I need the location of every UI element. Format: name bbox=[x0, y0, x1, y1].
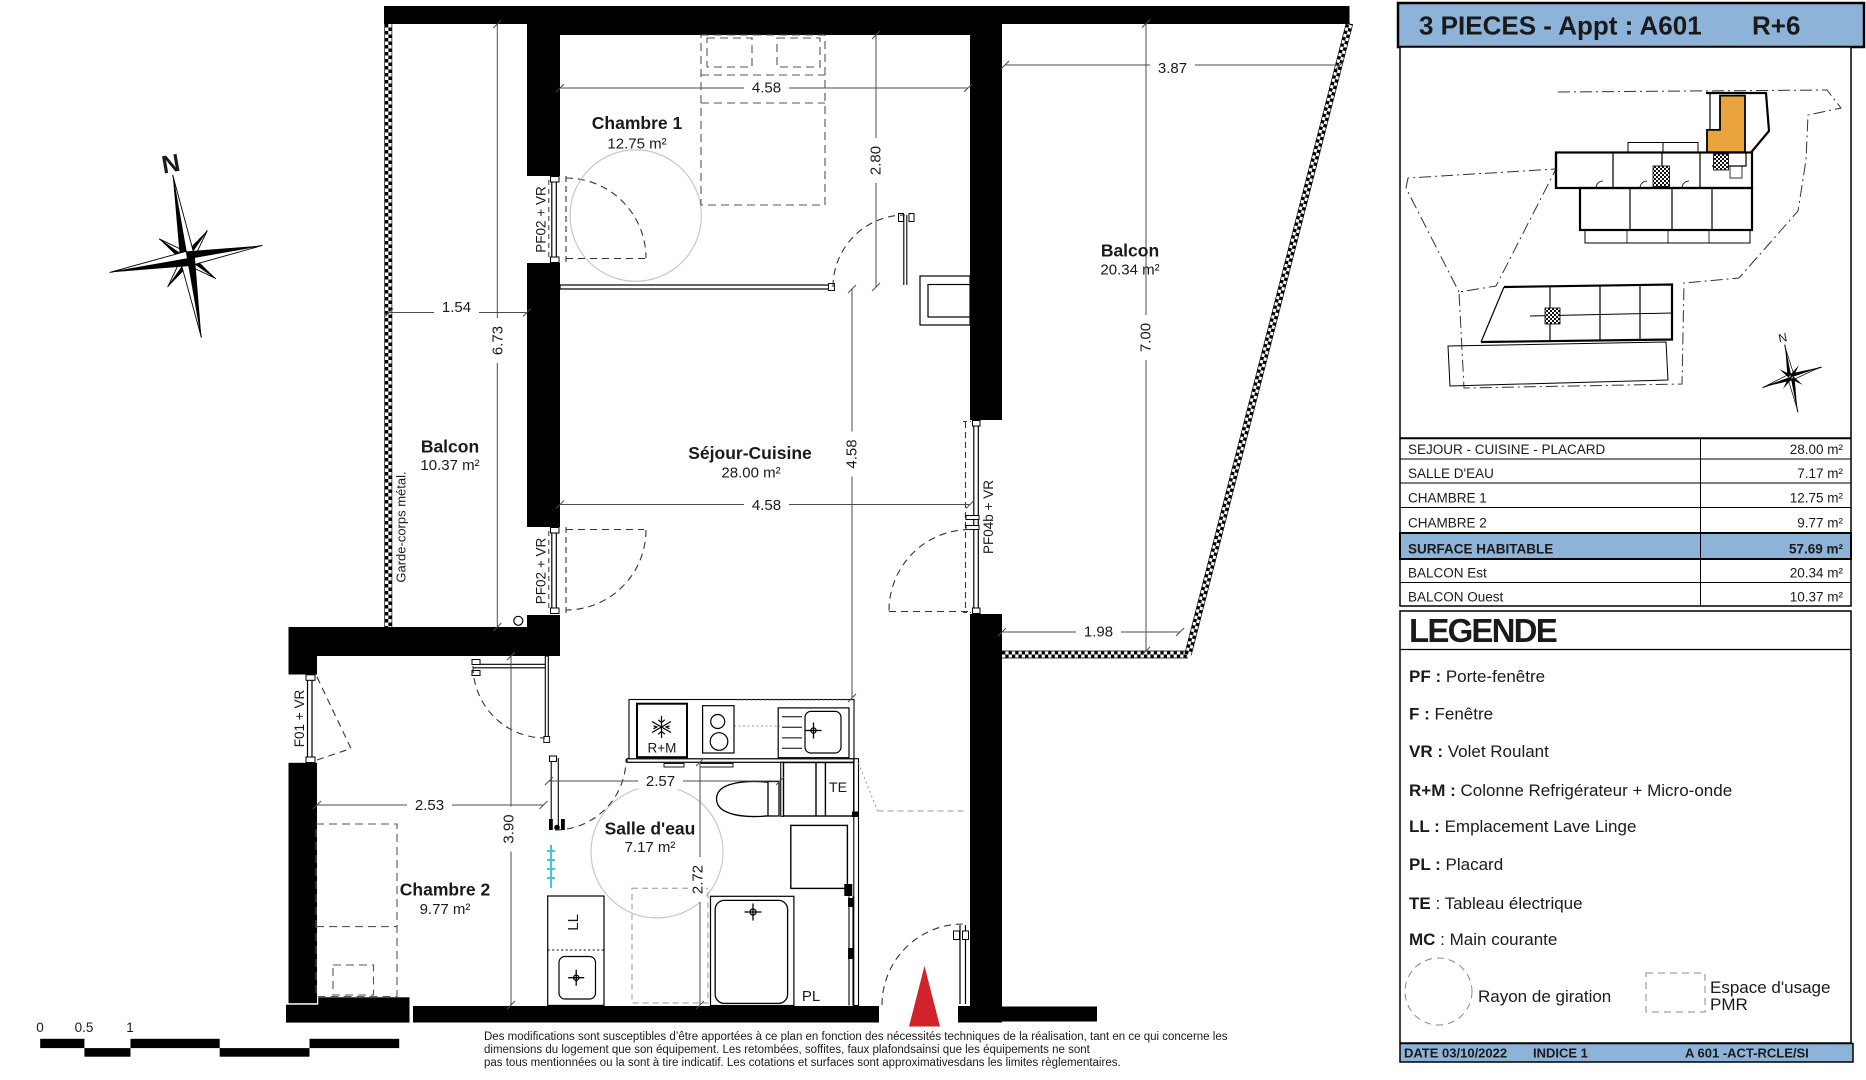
svg-text:TE : Tableau électrique: TE : Tableau électrique bbox=[1409, 894, 1583, 913]
svg-text:F01 + VR: F01 + VR bbox=[292, 690, 307, 748]
svg-text:0.5: 0.5 bbox=[75, 1020, 94, 1035]
svg-text:SEJOUR - CUISINE - PLACARD: SEJOUR - CUISINE - PLACARD bbox=[1408, 442, 1606, 457]
svg-text:1: 1 bbox=[126, 1020, 134, 1035]
svg-text:PF02 + VR: PF02 + VR bbox=[534, 186, 549, 253]
svg-text:28.00 m²: 28.00 m² bbox=[721, 465, 780, 482]
svg-text:1.98: 1.98 bbox=[1084, 624, 1113, 641]
svg-text:20.34 m²: 20.34 m² bbox=[1100, 262, 1159, 279]
svg-text:3 PIECES - Appt : A601: 3 PIECES - Appt : A601 bbox=[1419, 11, 1702, 41]
svg-text:LEGENDE: LEGENDE bbox=[1409, 612, 1557, 649]
svg-text:6.73: 6.73 bbox=[490, 326, 507, 355]
svg-text:Garde-corps métal.: Garde-corps métal. bbox=[394, 471, 409, 582]
svg-text:2.57: 2.57 bbox=[646, 773, 675, 790]
svg-text:7.17 m²: 7.17 m² bbox=[1797, 466, 1843, 481]
svg-text:pas tous mentionnées ou la son: pas tous mentionnées ou la sont à tire i… bbox=[484, 1057, 1121, 1069]
svg-text:PL: PL bbox=[802, 988, 820, 1005]
svg-text:7.00: 7.00 bbox=[1138, 323, 1155, 352]
svg-text:dimensions du logement que son: dimensions du logement que son équipemen… bbox=[484, 1044, 1091, 1056]
svg-text:VR : Volet Roulant: VR : Volet Roulant bbox=[1409, 742, 1549, 761]
svg-text:R+M: R+M bbox=[648, 741, 677, 756]
svg-text:SURFACE HABITABLE: SURFACE HABITABLE bbox=[1408, 542, 1553, 557]
svg-text:SALLE D'EAU: SALLE D'EAU bbox=[1408, 466, 1494, 481]
svg-text:12.75 m²: 12.75 m² bbox=[1790, 491, 1844, 506]
svg-text:1.54: 1.54 bbox=[442, 299, 471, 316]
svg-text:DATE 03/10/2022: DATE 03/10/2022 bbox=[1404, 1046, 1507, 1061]
svg-text:F : Fenêtre: F : Fenêtre bbox=[1409, 705, 1493, 724]
svg-text:Salle d'eau: Salle d'eau bbox=[605, 819, 696, 839]
svg-text:4.58: 4.58 bbox=[752, 497, 781, 514]
svg-text:Rayon de giration: Rayon de giration bbox=[1478, 987, 1611, 1006]
svg-text:3.90: 3.90 bbox=[501, 814, 518, 843]
svg-text:CHAMBRE 1: CHAMBRE 1 bbox=[1408, 491, 1487, 506]
svg-text:TE: TE bbox=[829, 779, 847, 795]
svg-text:7.17 m²: 7.17 m² bbox=[625, 839, 676, 856]
svg-text:28.00 m²: 28.00 m² bbox=[1790, 442, 1844, 457]
svg-text:PMR: PMR bbox=[1710, 995, 1748, 1014]
svg-text:4.58: 4.58 bbox=[844, 439, 861, 468]
svg-text:A 601 -ACT-RCLE/SI: A 601 -ACT-RCLE/SI bbox=[1685, 1046, 1809, 1061]
svg-text:Balcon: Balcon bbox=[1101, 241, 1159, 261]
svg-text:PF04b + VR: PF04b + VR bbox=[981, 480, 996, 554]
svg-text:R+6: R+6 bbox=[1752, 11, 1800, 41]
svg-text:BALCON Ouest: BALCON Ouest bbox=[1408, 590, 1504, 605]
svg-text:2.72: 2.72 bbox=[690, 865, 707, 894]
svg-text:9.77 m²: 9.77 m² bbox=[1797, 516, 1843, 531]
svg-text:R+M : Colonne Refrigérateur +: R+M : Colonne Refrigérateur + Micro-onde bbox=[1409, 781, 1732, 800]
svg-text:Chambre 2: Chambre 2 bbox=[400, 880, 491, 900]
svg-text:2.80: 2.80 bbox=[868, 146, 885, 175]
svg-text:4.58: 4.58 bbox=[752, 80, 781, 97]
svg-text:9.77 m²: 9.77 m² bbox=[420, 901, 471, 918]
svg-text:LL : Emplacement Lave Linge: LL : Emplacement Lave Linge bbox=[1409, 817, 1636, 836]
svg-text:57.69 m²: 57.69 m² bbox=[1789, 542, 1844, 557]
svg-text:PF : Porte-fenêtre: PF : Porte-fenêtre bbox=[1409, 667, 1545, 686]
svg-text:10.37 m²: 10.37 m² bbox=[1790, 590, 1844, 605]
svg-text:Balcon: Balcon bbox=[421, 437, 479, 457]
svg-text:INDICE 1: INDICE 1 bbox=[1533, 1046, 1588, 1061]
svg-text:Chambre 1: Chambre 1 bbox=[592, 113, 683, 133]
svg-text:10.37 m²: 10.37 m² bbox=[420, 457, 479, 474]
svg-text:PF02 + VR: PF02 + VR bbox=[534, 538, 549, 605]
svg-text:12.75 m²: 12.75 m² bbox=[607, 136, 666, 153]
svg-text:20.34 m²: 20.34 m² bbox=[1790, 566, 1844, 581]
svg-text:0: 0 bbox=[36, 1020, 44, 1035]
svg-text:3.87: 3.87 bbox=[1158, 60, 1187, 77]
svg-text:Séjour-Cuisine: Séjour-Cuisine bbox=[688, 443, 812, 463]
svg-text:2.53: 2.53 bbox=[415, 797, 444, 814]
svg-text:MC : Main courante: MC : Main courante bbox=[1409, 930, 1557, 949]
svg-text:BALCON Est: BALCON Est bbox=[1408, 566, 1487, 581]
svg-text:LL: LL bbox=[565, 914, 582, 931]
svg-text:PL : Placard: PL : Placard bbox=[1409, 855, 1503, 874]
svg-text:CHAMBRE 2: CHAMBRE 2 bbox=[1408, 516, 1487, 531]
svg-text:Des modifications sont suscept: Des modifications sont susceptibles d’êt… bbox=[484, 1031, 1228, 1043]
